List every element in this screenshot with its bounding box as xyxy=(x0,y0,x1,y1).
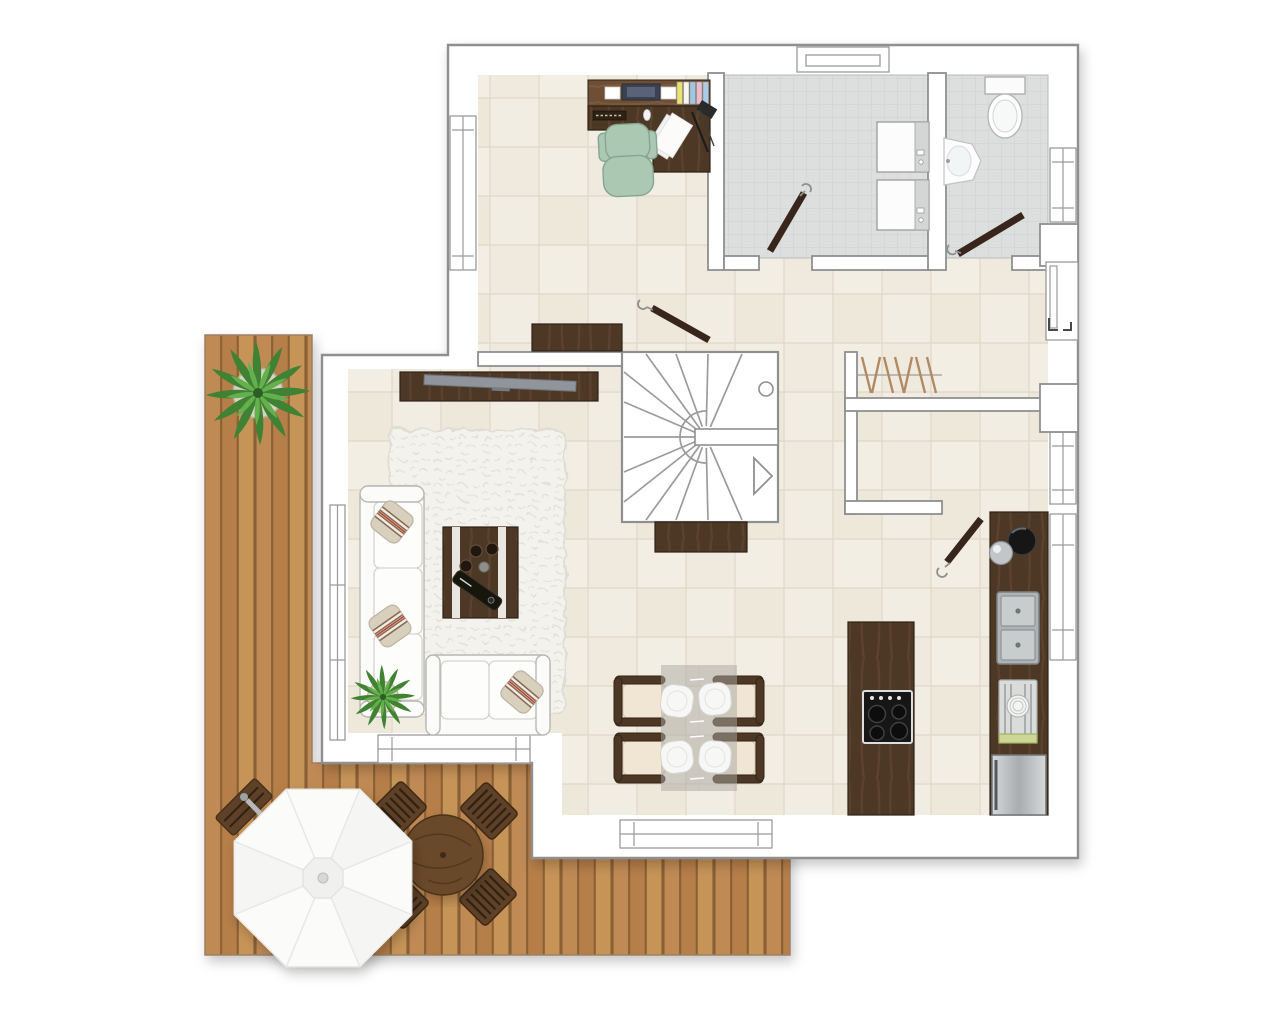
floor-plan-drawing xyxy=(0,0,1280,1025)
staircase xyxy=(622,352,778,522)
window-dining-bottom xyxy=(620,820,772,848)
cooktop xyxy=(863,691,912,743)
dining-chair xyxy=(614,733,665,783)
desk-paper-left xyxy=(605,87,620,99)
vase xyxy=(479,562,489,572)
hall-sideboard xyxy=(532,324,622,351)
glass-cup xyxy=(460,560,472,572)
washer xyxy=(877,122,929,172)
desk-paper-right xyxy=(661,87,676,99)
window-right-top xyxy=(1050,148,1076,222)
dish-rack xyxy=(999,680,1037,743)
window-office-left xyxy=(450,116,476,270)
wall-pier-upper xyxy=(1040,224,1078,266)
stairs-sideboard xyxy=(655,522,747,552)
kitchen-island xyxy=(848,622,914,815)
toilet xyxy=(985,77,1025,138)
stainless-appliance xyxy=(992,755,1046,815)
stair-post xyxy=(759,382,773,396)
window-kitchen-right xyxy=(1050,514,1076,660)
wall-pier-lower xyxy=(1040,384,1078,432)
window-right-middle xyxy=(1050,432,1076,504)
coffee-table xyxy=(443,527,518,618)
house xyxy=(322,45,1078,858)
kitchen-counter xyxy=(990,512,1049,815)
window-living-left xyxy=(330,505,345,740)
outdoor-table xyxy=(403,815,483,895)
double-sink xyxy=(997,592,1039,664)
glass-cup xyxy=(486,543,498,555)
parasol xyxy=(234,789,411,966)
dining-chair xyxy=(614,676,665,726)
window-living-bottom xyxy=(378,735,530,763)
front-door xyxy=(1046,262,1078,340)
dryer xyxy=(877,180,929,230)
window-top xyxy=(797,47,889,72)
mouse xyxy=(644,110,651,121)
floor-plan-page xyxy=(0,0,1280,1025)
loveseat xyxy=(426,655,550,735)
glass-cup xyxy=(470,545,482,557)
office-chair xyxy=(598,123,660,198)
parasol-finial xyxy=(318,873,328,883)
desk-books xyxy=(677,82,709,104)
